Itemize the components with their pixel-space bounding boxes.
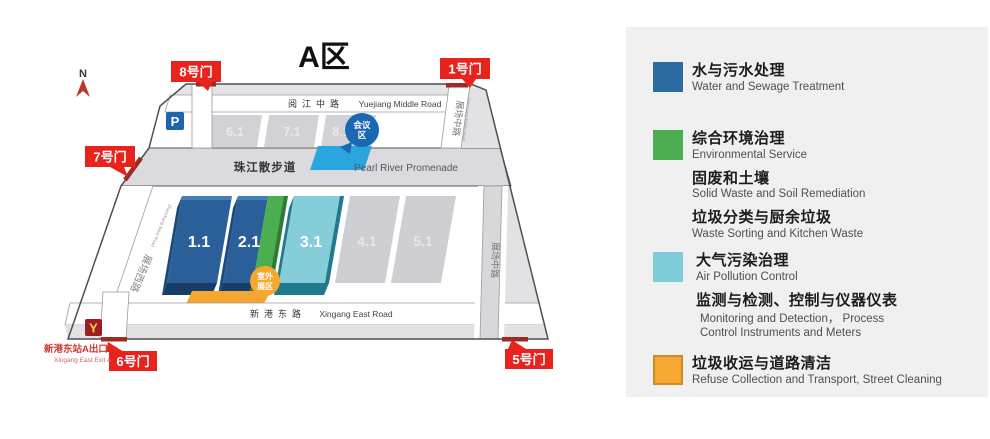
gate6-dash (101, 337, 127, 342)
legend-sorting-cn: 垃圾分类与厨余垃圾 (692, 209, 865, 228)
legend-item-water: 水与污水处理 Water and Sewage Treatment (653, 62, 844, 95)
gate1-label-text: 1号门 (448, 62, 481, 77)
legend-water-en: Water and Sewage Treatment (692, 81, 844, 95)
metro-exit-en: Xingang East Exit A (54, 357, 112, 364)
metro-exit-cn: 新港东站A出口 (44, 343, 108, 355)
venue-map: 6.1 7.1 8.1 展场中路 Zhanchang Middle Road 展… (0, 0, 628, 434)
legend-refuse-en: Refuse Collection and Transport, Street … (692, 374, 942, 388)
xingang-label-cn: 新港东路 (250, 308, 306, 319)
hall-5-1-label: 5.1 (413, 233, 433, 249)
gate6-label: 6号门 (106, 342, 157, 371)
gate6-road (100, 292, 129, 339)
legend-water-cn: 水与污水处理 (692, 62, 844, 81)
gate7-label-tail (110, 167, 128, 177)
hall-1-1-bevel (181, 196, 232, 200)
hall-4-1-label: 4.1 (357, 233, 377, 249)
hall-3-1-bottom (274, 283, 329, 295)
hall-7-1-label: 7.1 (283, 125, 300, 139)
parking-icon-glyph: P (171, 114, 180, 129)
legend-sorting-en: Waste Sorting and Kitchen Waste (692, 228, 865, 242)
gate7-label: 7号门 (85, 146, 135, 177)
legend-swatch-water (653, 62, 683, 92)
parking: P (166, 112, 184, 130)
zhanchang-middle-right-label: 展场中路 (489, 242, 501, 278)
xingang-label-en: Xingang East Road (319, 309, 393, 319)
gate5-label-text: 5号门 (512, 352, 545, 367)
north-arrow: N (76, 68, 90, 97)
legend-solidwaste-en: Solid Waste and Soil Remediation (692, 188, 865, 202)
hall-2-1-bevel (237, 196, 268, 200)
conference-label-2: 区 (358, 130, 367, 140)
gate1-dash (446, 83, 468, 88)
legend-refuse-cn: 垃圾收运与道路清洁 (692, 355, 942, 374)
legend-item-refuse: 垃圾收运与道路清洁 Refuse Collection and Transpor… (653, 355, 942, 388)
gate5-dash (502, 337, 528, 342)
legend-monitoring-en1: Monitoring and Detection， Process (696, 313, 898, 327)
outdoor-label-1: 室外 (257, 271, 273, 281)
hall-6-1-label: 6.1 (226, 125, 243, 139)
outdoor-label-2: 展区 (256, 282, 273, 291)
legend-air-en: Air Pollution Control (696, 271, 898, 285)
legend-solidwaste-cn: 固废和土壤 (692, 170, 865, 189)
gate6-label-text: 6号门 (116, 354, 149, 369)
hall-1-1-label: 1.1 (188, 234, 210, 251)
legend-panel: 水与污水处理 Water and Sewage Treatment 综合环境治理… (626, 27, 988, 397)
legend-monitoring-cn: 监测与检测、控制与仪器仪表 (696, 292, 898, 311)
legend-swatch-refuse (653, 355, 683, 385)
north-arrow-icon (76, 79, 90, 97)
gate8-label-text: 8号门 (179, 65, 212, 80)
outdoor-circle (250, 266, 280, 296)
legend-env-cn: 综合环境治理 (692, 130, 865, 149)
gate8-road (192, 84, 212, 148)
hall-2-1-label: 2.1 (238, 234, 260, 251)
map-title: A区 (298, 41, 350, 74)
legend-swatch-environment (653, 130, 683, 160)
yuejiang-label-en: Yuejiang Middle Road (359, 99, 442, 109)
promenade-label-cn: 珠江散步道 (234, 160, 297, 174)
legend-swatch-air (653, 252, 683, 282)
yuejiang-label-cn: 阅江中路 (288, 98, 344, 109)
gate6-label-tail (106, 342, 124, 352)
legend-air-cn: 大气污染治理 (696, 252, 898, 271)
legend-item-environment: 综合环境治理 Environmental Service 固废和土壤 Solid… (653, 130, 865, 242)
legend-env-en: Environmental Service (692, 149, 865, 163)
promenade-label-en: Pearl River Promenade (354, 163, 458, 174)
legend-item-air: 大气污染治理 Air Pollution Control 监测与检测、控制与仪器… (653, 252, 898, 341)
conference-label-1: 会议 (352, 120, 371, 130)
hall-3-1-label: 3.1 (300, 234, 322, 251)
top-sidewalk (172, 84, 487, 95)
legend-monitoring-en2: Control Instruments and Meters (696, 327, 898, 341)
gate7-label-text: 7号门 (93, 150, 126, 165)
north-label: N (79, 68, 87, 80)
gate5-label: 5号门 (505, 340, 553, 369)
metro-icon-glyph: Y (89, 321, 98, 336)
